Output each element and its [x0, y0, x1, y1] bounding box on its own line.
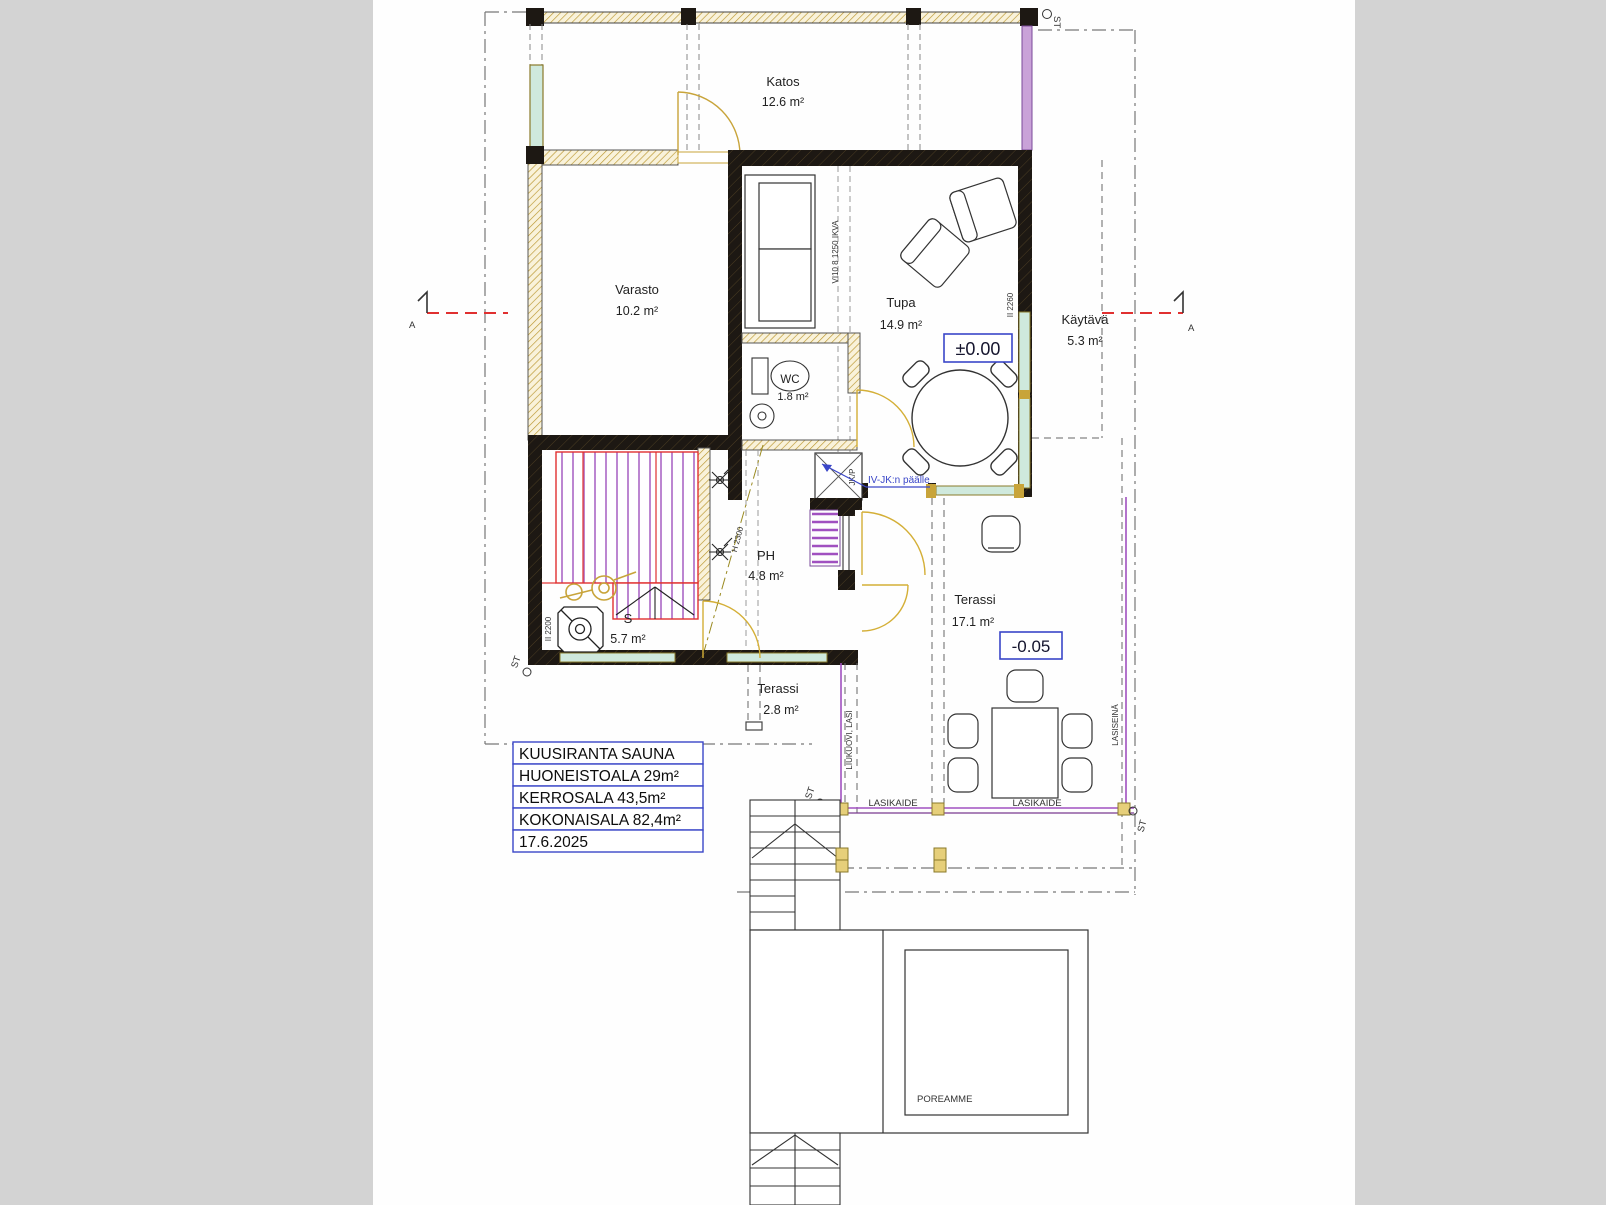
title-huoneistoala: HUONEISTOALA 29m² [519, 768, 679, 785]
terrace-chair [948, 758, 978, 792]
floorplan-page: Katos 12.6 m² Varasto 10.2 m² [0, 0, 1606, 1205]
room-area-kaytava: 5.3 m² [1067, 334, 1102, 348]
sliding-door-label: LIUKUOVI, LASI [845, 710, 854, 769]
window-height-label: II 2260 [1006, 292, 1015, 317]
corner-post [526, 8, 544, 26]
mid-post [681, 8, 696, 25]
ph-ladder [812, 514, 838, 562]
ceiling-height-label: H 2300 [730, 525, 746, 553]
room-label-kaytava: Käytävä [1062, 312, 1110, 327]
stairs-lower [750, 1133, 840, 1205]
katos-left-window [530, 65, 543, 150]
corner-post [526, 146, 544, 164]
varasto-top-wall [530, 150, 678, 165]
title-project: KUUSIRANTA SAUNA [519, 746, 675, 763]
poreamme-label: POREAMME [917, 1094, 972, 1105]
railing-label-right: LASIKAIDE [1012, 798, 1061, 809]
varasto-structure [526, 92, 742, 450]
sauna-structure: II 2200 [528, 435, 858, 665]
terrace-table [992, 708, 1058, 798]
sauna-window [560, 653, 675, 662]
ph-window [727, 653, 827, 662]
railing-post [1118, 803, 1130, 815]
st-marker: ST [803, 785, 818, 800]
title-kerrosala: KERROSALA 43,5m² [519, 790, 665, 807]
terrace-chair [1007, 670, 1043, 702]
room-area-terassi-pieni: 2.8 m² [763, 703, 798, 717]
iv-jk-note: IV-JK:n päälle [868, 475, 930, 486]
kaytava-structure [1032, 160, 1102, 438]
wc-bottom-wall [742, 440, 857, 450]
wc-top-wall [742, 333, 860, 343]
varasto-left-wall [528, 150, 542, 440]
tupa-right-window-1 [1019, 312, 1030, 392]
post-cap [746, 722, 762, 730]
title-block: KUUSIRANTA SAUNA HUONEISTOALA 29m² KERRO… [513, 742, 703, 852]
corner-block [838, 570, 855, 590]
terrace-chair [948, 714, 978, 748]
section-marker-left: A [409, 292, 508, 331]
poreamme-tub [905, 950, 1068, 1115]
window-post [1014, 484, 1024, 498]
title-date: 17.6.2025 [519, 834, 588, 851]
room-area-terassi-iso: 17.1 m² [952, 615, 994, 629]
st-marker: ST [509, 654, 524, 669]
terrace-small-structure [746, 665, 762, 730]
room-area-wc: 1.8 m² [777, 391, 809, 403]
room-area-sauna: 5.7 m² [610, 632, 645, 646]
tupa-right-window-2 [1019, 398, 1030, 488]
room-label-katos: Katos [766, 74, 800, 89]
section-letter: A [1188, 323, 1195, 334]
sofa [745, 175, 815, 328]
room-label-wc: WC [780, 374, 799, 386]
tupa-left-wall [728, 150, 742, 500]
lounge-chair [948, 177, 1017, 244]
level-terrace: -0.05 [1012, 637, 1051, 656]
section-marker-right: A [1102, 292, 1195, 334]
room-label-tupa: Tupa [886, 295, 916, 310]
st-marker: ST [1136, 819, 1150, 834]
sauna-ph-divider [698, 448, 710, 600]
window-post [926, 484, 936, 498]
st-marker: ST [1051, 16, 1062, 28]
terrace-chair [982, 516, 1020, 552]
room-area-varasto: 10.2 m² [616, 304, 658, 318]
terrace-chair [1062, 714, 1092, 748]
tupa-terrace-door [862, 512, 925, 575]
stairs-upper [750, 800, 840, 930]
room-label-ph: PH [757, 548, 775, 563]
window-marking: VI10 8 1250 IKVA [831, 220, 840, 284]
shower-symbol [709, 538, 732, 560]
corner-block [838, 498, 855, 516]
wc-right-wall [848, 333, 860, 393]
glass-wall-label: LASISEINÄ [1111, 704, 1120, 746]
wc-structure [742, 333, 914, 450]
corner-post [1020, 8, 1038, 26]
stove-height: II 2200 [544, 616, 553, 641]
section-letter: A [409, 320, 416, 331]
room-label-terassi-pieni: Terassi [757, 681, 798, 696]
sauna-left-wall [528, 435, 542, 665]
window-mullion [1019, 390, 1030, 399]
level-main: ±0.00 [956, 339, 1001, 359]
sauna-stove [558, 607, 603, 652]
room-area-ph: 4.8 m² [748, 569, 783, 583]
round-table [900, 358, 1019, 477]
railing-label-left: LASIKAIDE [868, 798, 917, 809]
room-label-terassi-iso: Terassi [954, 592, 995, 607]
floor-drain [750, 404, 774, 428]
title-kokonaisala: KOKONAISALA 82,4m² [519, 812, 681, 829]
wc-door [857, 390, 914, 447]
room-label-sauna: S [624, 611, 633, 626]
room-area-katos: 12.6 m² [762, 95, 804, 109]
terrace-chair [1062, 758, 1092, 792]
sauna-benches [556, 452, 698, 583]
room-label-varasto: Varasto [615, 282, 659, 297]
katos-right-glass [1022, 26, 1032, 150]
jk-label: JK/P [848, 469, 857, 486]
katos-top-wall [530, 12, 1032, 23]
tupa-bottom-window [936, 486, 1018, 495]
tupa-top-wall [728, 150, 1032, 166]
railing-post [932, 803, 944, 815]
room-area-tupa: 14.9 m² [880, 318, 922, 332]
floorplan-drawing: Katos 12.6 m² Varasto 10.2 m² [0, 0, 1606, 1205]
mid-post [906, 8, 921, 25]
sauna-door [703, 601, 760, 658]
ph-terrace-door [862, 585, 908, 631]
